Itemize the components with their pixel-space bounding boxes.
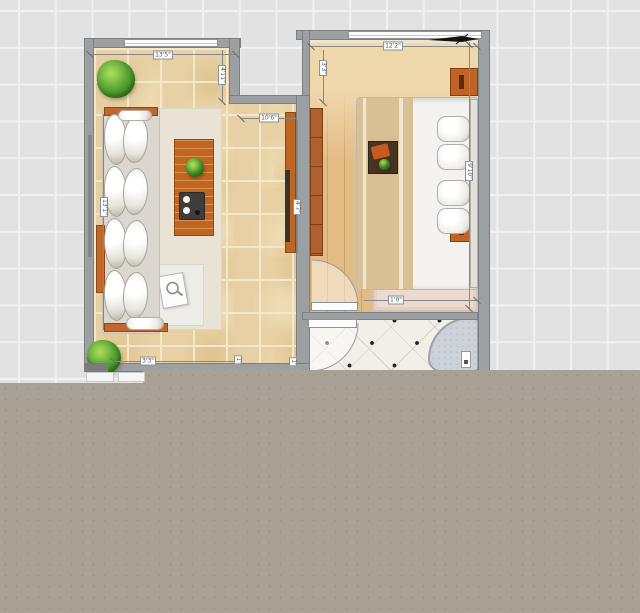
dim-line-living-side	[103, 114, 104, 330]
bed-tray-plant	[379, 159, 390, 170]
dim-label-bottom-b: 1'	[289, 357, 297, 366]
tv-screen	[285, 170, 290, 242]
dim-line-bedroom-left	[323, 50, 324, 103]
magnifier-icon	[162, 277, 186, 304]
sofa-cushion-3	[104, 217, 150, 269]
tray-cup-1	[183, 196, 190, 203]
unrendered-overlay-main	[0, 383, 640, 613]
dim-label-living-width: 13'5"	[153, 51, 173, 60]
divider-wall	[296, 95, 310, 372]
dim-label-living-entry: 4'11"	[218, 65, 226, 85]
dim-line-bedroom-rug	[364, 300, 477, 301]
dim-label-bedroom-side: 9'10"	[465, 161, 473, 181]
bedroom-right-wall	[478, 30, 490, 372]
table-plant[interactable]	[186, 158, 204, 177]
living-bottom-wall-end	[84, 363, 108, 372]
dim-label-tv-wall: 10'6"	[259, 114, 279, 123]
unrendered-overlay-right	[143, 370, 640, 384]
threshold-strip-1	[86, 372, 114, 382]
dim-line-tv-side	[297, 120, 298, 253]
toilet-fixture-dot	[464, 360, 468, 364]
bedroom-door-swing-arc	[310, 258, 360, 308]
dim-label-bottom-a: 1'	[234, 355, 242, 364]
tray-cup-2	[183, 207, 190, 214]
coffee-table[interactable]	[174, 139, 214, 236]
dim-label-living-bottom: 3'3"	[140, 357, 156, 366]
bed-pillow-3	[437, 180, 470, 206]
sofa-end-pillow-bottom	[126, 317, 164, 330]
threshold-strip-2	[118, 372, 145, 382]
exterior-wall-shading	[88, 135, 92, 257]
bed-headboard	[470, 99, 478, 288]
sofa-cushion-2	[104, 165, 150, 217]
living-plant-top[interactable]	[97, 60, 135, 98]
bed-pillow-4	[437, 208, 470, 234]
nightstand-top[interactable]	[450, 68, 478, 96]
annotation-arrow-icon	[426, 33, 480, 45]
bedroom-left-wall	[302, 30, 310, 96]
bathroom-door-leaf[interactable]	[308, 319, 357, 328]
tray-item	[195, 210, 200, 215]
missing-texture-placeholder[interactable]	[157, 272, 188, 309]
sofa-end-pillow-top	[118, 110, 152, 121]
dim-label-tv-side: 4'7"	[293, 199, 301, 215]
dim-label-rug-width: 1'0"	[388, 296, 404, 305]
bathroom-door-swing-arc	[308, 321, 360, 373]
bedroom-door-leaf[interactable]	[311, 302, 358, 311]
wardrobe[interactable]	[310, 108, 323, 256]
dim-label-bedroom-width: 12'2"	[383, 42, 403, 51]
floorplan-canvas: 13'5" 4'11" 13'1" 10'6" 4'7" 3'3" 1' 1' …	[0, 0, 640, 613]
living-window	[124, 39, 218, 47]
bed-pillow-1	[437, 116, 470, 142]
dim-label-living-side: 13'1"	[100, 197, 108, 217]
dim-label-bedroom-left: 3'3"	[319, 60, 327, 76]
sofa-cushion-4	[104, 269, 150, 321]
bed-foot-runner	[357, 98, 413, 289]
